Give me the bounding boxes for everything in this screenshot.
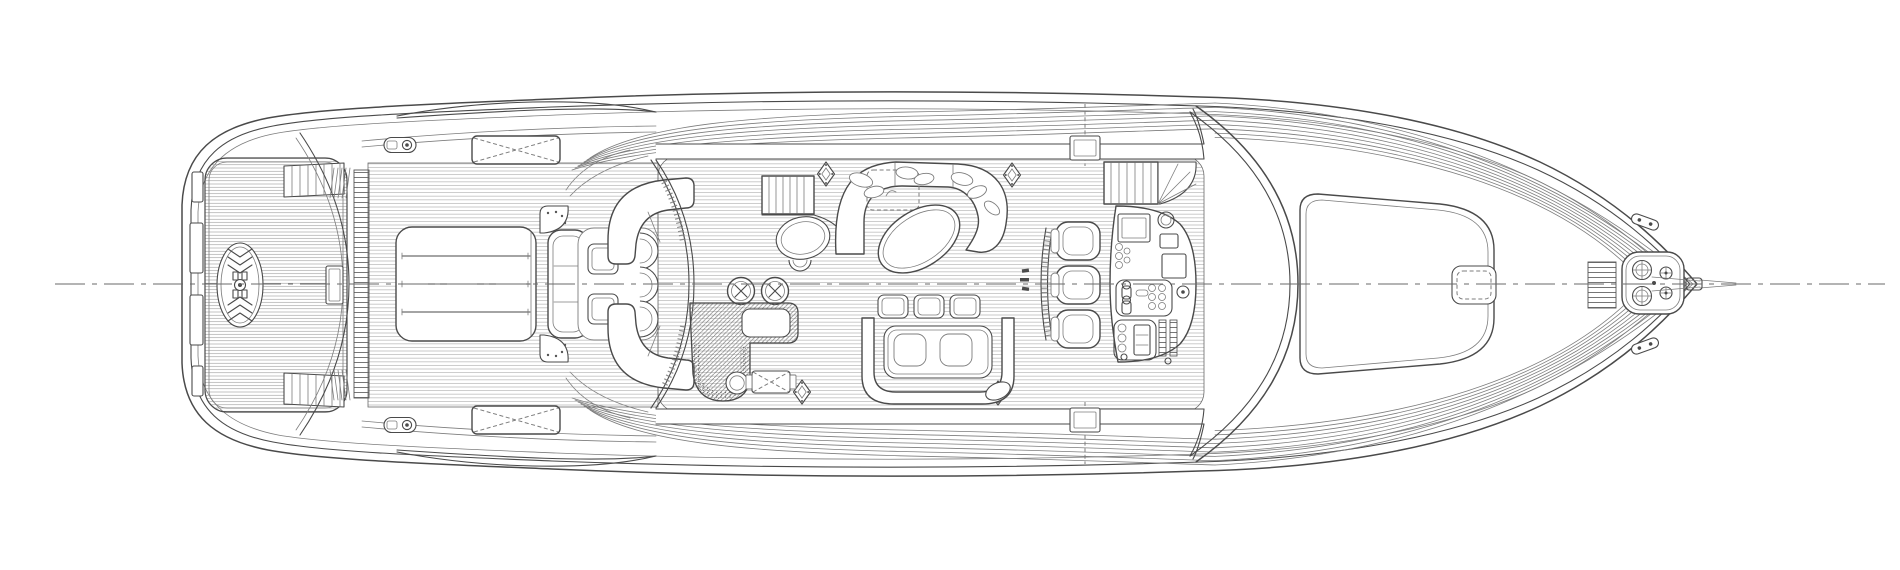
helm-seat — [1051, 222, 1100, 260]
capstan — [1660, 267, 1672, 279]
helm-seats — [1051, 222, 1100, 348]
ottoman — [950, 295, 980, 318]
engine-room-hatch — [746, 371, 796, 393]
liferaft-locker-starboard — [472, 406, 560, 434]
ottoman — [878, 295, 908, 318]
helm-seat — [1051, 310, 1100, 348]
bulwark-gate-port — [1070, 104, 1100, 166]
helm-console — [1110, 206, 1196, 364]
windlass-drum — [1633, 261, 1652, 280]
port-wall-band — [656, 144, 1204, 159]
trim-indicator — [1170, 320, 1177, 356]
deck-plan-canvas — [0, 0, 1900, 570]
capstan — [1660, 287, 1672, 299]
bow-cleat-starboard — [1630, 337, 1660, 356]
windlass-drum — [1633, 287, 1652, 306]
crescent-chairs — [640, 233, 658, 337]
anchor-windlass-pod — [1622, 252, 1684, 314]
liferaft-locker-port — [472, 136, 560, 164]
bulwark-gate-starboard — [1070, 402, 1100, 464]
trim-indicator — [1159, 320, 1166, 356]
bar-stool — [728, 278, 755, 305]
starboard-wall-band — [656, 409, 1204, 424]
dinette-cushion — [894, 334, 926, 366]
yacht-deck-plan — [0, 0, 1900, 570]
bar-sink — [726, 372, 748, 394]
bow-cleat-port — [1630, 213, 1660, 232]
helm-seat — [1051, 266, 1100, 304]
transom-medallion — [217, 243, 263, 327]
ottoman — [914, 295, 944, 318]
dinette-cushion — [940, 334, 972, 366]
bar-stool — [762, 278, 789, 305]
transom-center-box — [326, 266, 343, 304]
foredeck-skylight — [1452, 266, 1496, 304]
stern-cleat-starboard — [384, 418, 416, 433]
bar-top-inset — [742, 309, 790, 337]
stern-cleat-port — [384, 138, 416, 153]
foredeck-ribbed-strip — [1588, 262, 1616, 308]
